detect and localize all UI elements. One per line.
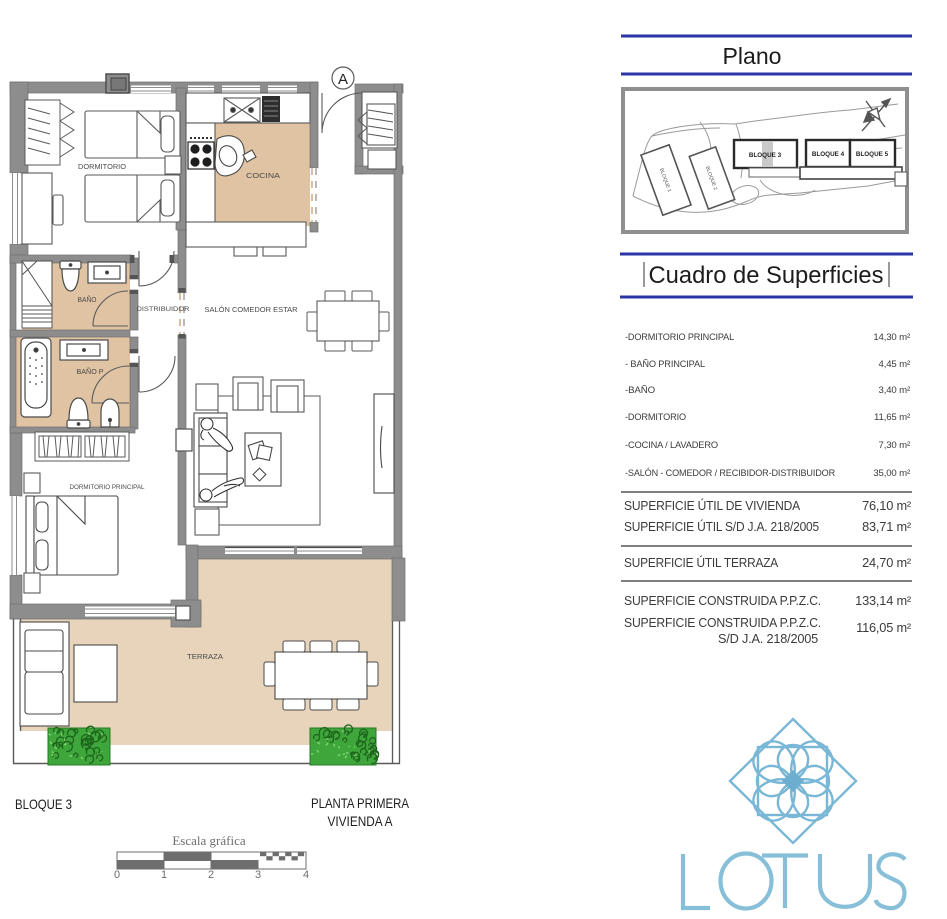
- svg-text:BLOQUE 5: BLOQUE 5: [856, 151, 889, 158]
- svg-text:3,40 m²: 3,40 m²: [879, 385, 911, 396]
- svg-text:BLOQUE 3: BLOQUE 3: [15, 796, 72, 812]
- svg-text:76,10 m²: 76,10 m²: [862, 498, 912, 513]
- svg-text:DISTRIBUIDOR: DISTRIBUIDOR: [137, 306, 190, 313]
- svg-text:133,14 m²: 133,14 m²: [855, 593, 912, 608]
- svg-text:DORMITORIO PRINCIPAL: DORMITORIO PRINCIPAL: [70, 484, 145, 491]
- svg-text:BLOQUE 3: BLOQUE 3: [749, 152, 782, 159]
- svg-text:PLANTA PRIMERA: PLANTA PRIMERA: [311, 796, 409, 811]
- svg-text:2: 2: [208, 869, 214, 881]
- svg-text:BLOQUE 4: BLOQUE 4: [812, 151, 845, 158]
- svg-text:S/D J.A. 218/2005: S/D J.A. 218/2005: [718, 631, 818, 646]
- svg-text:SALÓN COMEDOR ESTAR: SALÓN COMEDOR ESTAR: [205, 305, 299, 314]
- svg-text:4,45 m²: 4,45 m²: [879, 359, 911, 370]
- svg-text:3: 3: [255, 869, 261, 881]
- svg-text:14,30 m²: 14,30 m²: [873, 332, 911, 343]
- svg-text:SUPERFICIE CONSTRUIDA P.P.Z.C.: SUPERFICIE CONSTRUIDA P.P.Z.C.: [624, 615, 821, 630]
- svg-text:BAÑO: BAÑO: [78, 295, 98, 304]
- svg-text:Escala gráfica: Escala gráfica: [172, 833, 245, 848]
- svg-text:Plano: Plano: [723, 43, 782, 69]
- svg-text:1: 1: [161, 869, 167, 881]
- svg-text:VIVIENDA A: VIVIENDA A: [328, 814, 393, 829]
- svg-text:TERRAZA: TERRAZA: [187, 652, 223, 661]
- svg-text:BAÑO P: BAÑO P: [77, 367, 104, 376]
- svg-text:11,65 m²: 11,65 m²: [874, 412, 911, 423]
- svg-text:4: 4: [303, 869, 309, 881]
- svg-text:SUPERFICIE ÚTIL TERRAZA: SUPERFICIE ÚTIL TERRAZA: [624, 555, 779, 570]
- svg-text:-BAÑO: -BAÑO: [625, 385, 655, 396]
- svg-text:0: 0: [114, 869, 120, 881]
- svg-text:Cuadro de Superficies: Cuadro de Superficies: [649, 262, 884, 289]
- svg-text:- BAÑO PRINCIPAL: - BAÑO PRINCIPAL: [625, 359, 706, 370]
- svg-text:-DORMITORIO: -DORMITORIO: [625, 412, 686, 423]
- svg-text:116,05 m²: 116,05 m²: [856, 620, 912, 635]
- svg-text:SUPERFICIE ÚTIL DE VIVIENDA: SUPERFICIE ÚTIL DE VIVIENDA: [624, 498, 801, 513]
- svg-text:DORMITORIO: DORMITORIO: [78, 162, 126, 171]
- svg-text:-DORMITORIO PRINCIPAL: -DORMITORIO PRINCIPAL: [625, 332, 735, 343]
- svg-text:-SALÓN - COMEDOR / RECIBIDOR-: -SALÓN - COMEDOR / RECIBIDOR-DISTRIBUIDO…: [625, 468, 835, 479]
- svg-text:A: A: [338, 71, 348, 88]
- svg-text:SUPERFICIE CONSTRUIDA P.P.Z.C.: SUPERFICIE CONSTRUIDA P.P.Z.C.: [624, 593, 821, 608]
- svg-text:COCINA: COCINA: [246, 171, 280, 180]
- svg-text:7,30 m²: 7,30 m²: [879, 440, 911, 451]
- svg-text:35,00 m²: 35,00 m²: [873, 468, 911, 479]
- svg-text:-COCINA / LAVADERO: -COCINA / LAVADERO: [625, 440, 718, 451]
- svg-text:SUPERFICIE ÚTIL S/D J.A. 218/2: SUPERFICIE ÚTIL S/D J.A. 218/2005: [624, 519, 819, 534]
- svg-text:24,70 m²: 24,70 m²: [862, 555, 912, 570]
- svg-text:83,71 m²: 83,71 m²: [862, 519, 912, 534]
